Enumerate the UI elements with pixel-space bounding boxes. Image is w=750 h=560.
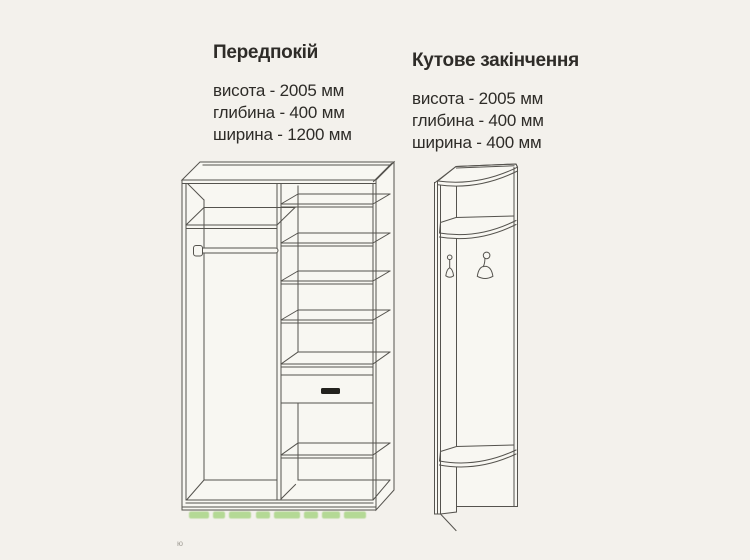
corner-unit-drawing xyxy=(435,164,518,531)
spec-width: ширина - 1200 мм xyxy=(213,124,352,146)
technical-drawings xyxy=(0,0,750,560)
spec-depth: глибина - 400 мм xyxy=(213,102,352,124)
watermark-fragment xyxy=(189,512,366,519)
product-specs: висота - 2005 мм глибина - 400 мм ширина… xyxy=(213,80,352,146)
spec-height: висота - 2005 мм xyxy=(412,88,579,110)
catalog-page: Передпокій висота - 2005 мм глибина - 40… xyxy=(0,0,750,560)
spec-width: ширина - 400 мм xyxy=(412,132,579,154)
spec-height: висота - 2005 мм xyxy=(213,80,352,102)
product-info-corner: Кутове закінчення висота - 2005 мм глиби… xyxy=(412,50,579,154)
wardrobe-front-face xyxy=(182,180,376,510)
footnote-mark: ю xyxy=(177,539,183,548)
drawer-handle-icon xyxy=(321,388,340,394)
wardrobe-drawing xyxy=(182,162,394,519)
product-specs: висота - 2005 мм глибина - 400 мм ширина… xyxy=(412,88,579,154)
product-info-hallway: Передпокій висота - 2005 мм глибина - 40… xyxy=(213,42,352,146)
spec-depth: глибина - 400 мм xyxy=(412,110,579,132)
product-title: Кутове закінчення xyxy=(412,50,579,71)
wardrobe-side-face xyxy=(376,162,394,510)
product-title: Передпокій xyxy=(213,42,352,63)
